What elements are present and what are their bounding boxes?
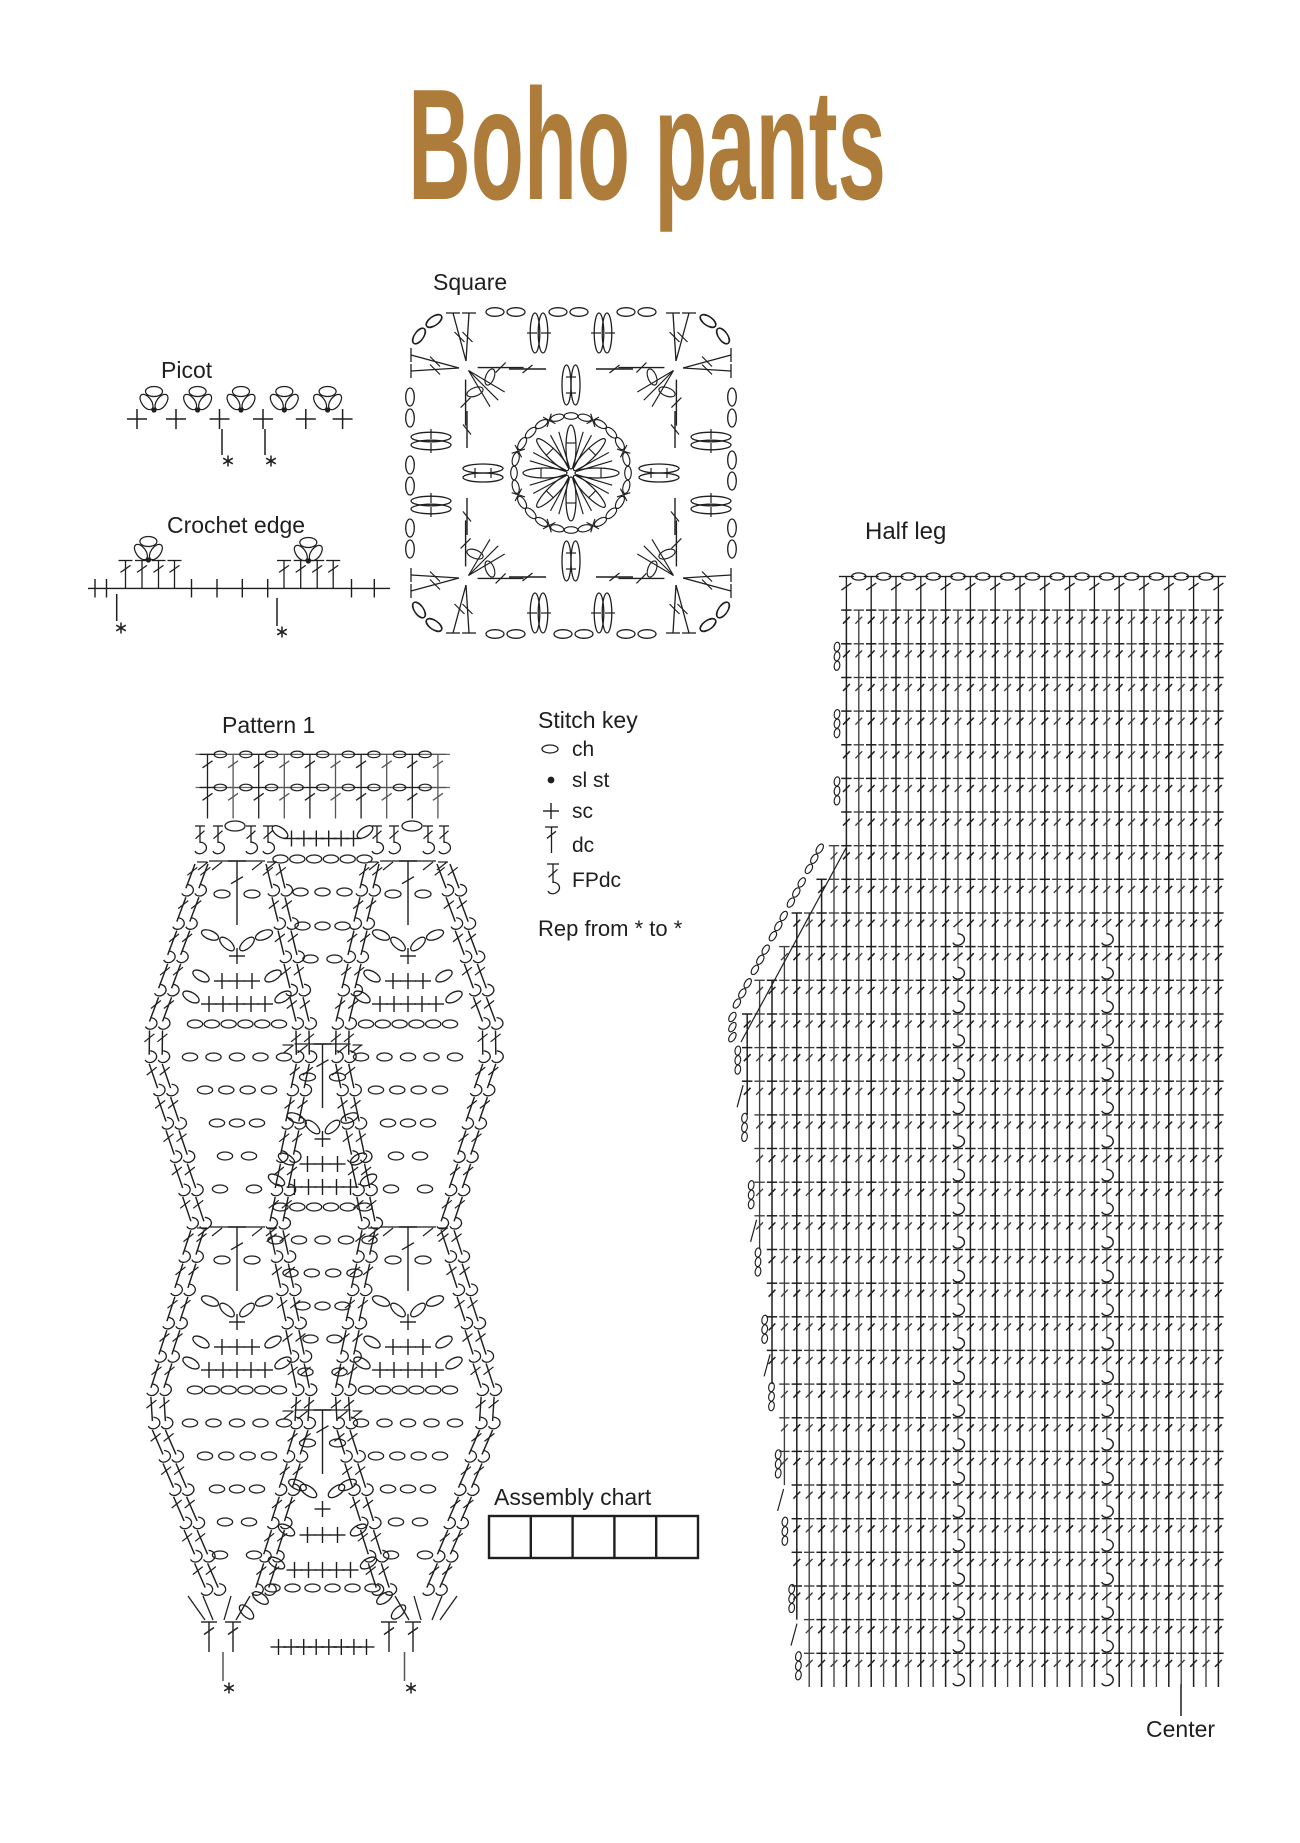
svg-text:sl st: sl st [572,769,610,792]
svg-text:Assembly chart: Assembly chart [494,1484,652,1510]
svg-text:Rep from * to *: Rep from * to * [538,916,683,941]
svg-text:Center: Center [1146,1716,1215,1742]
svg-text:Crochet edge: Crochet edge [167,512,305,538]
svg-text:Picot: Picot [161,357,213,383]
svg-text:dc: dc [572,834,594,857]
svg-text:ch: ch [572,738,594,761]
svg-text:Stitch key: Stitch key [538,707,638,733]
svg-text:FPdc: FPdc [572,869,621,892]
svg-text:Boho pants: Boho pants [408,58,886,234]
svg-text:sc: sc [572,800,593,823]
svg-text:Pattern 1: Pattern 1 [222,712,315,738]
svg-text:Half leg: Half leg [865,518,946,545]
svg-text:Square: Square [433,269,507,295]
